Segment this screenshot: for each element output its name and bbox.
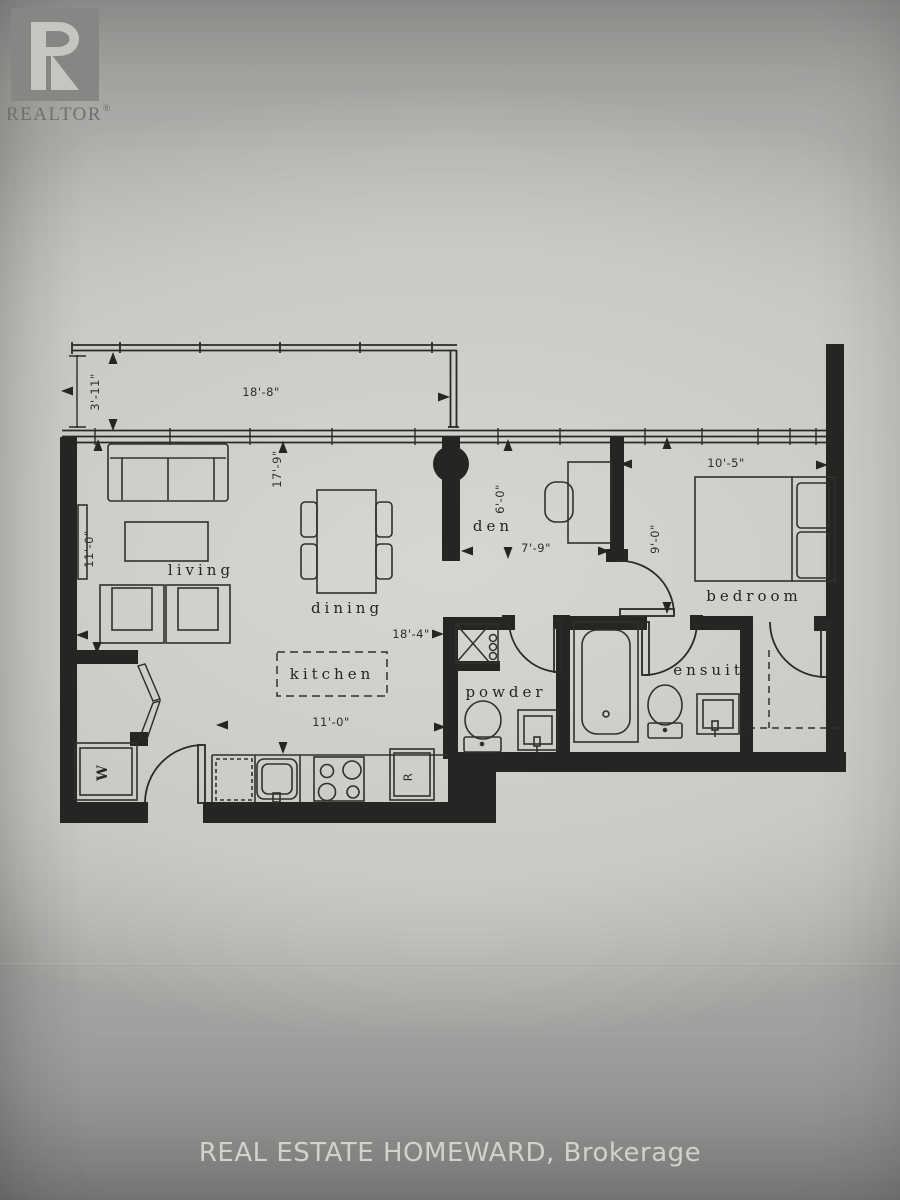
- room-label-powder: powder: [465, 683, 546, 701]
- powder-door: [509, 620, 561, 672]
- dining-chair: [376, 544, 392, 579]
- dim-den-depth: 6'-0": [493, 484, 507, 514]
- armchair-2: [166, 585, 230, 643]
- dim-bedroom-depth: 9'-0": [648, 524, 662, 554]
- bedroom-furniture: [695, 477, 835, 581]
- dishwasher: [216, 759, 252, 800]
- walk-in-closet-rod: [748, 650, 838, 728]
- sofa: [108, 444, 228, 501]
- dining-chair: [376, 502, 392, 537]
- living-room-furniture: [78, 444, 230, 643]
- room-label-dining: dining: [311, 599, 383, 617]
- ensuite-toilet: [648, 685, 682, 738]
- stove: [314, 757, 364, 801]
- dim-bedroom-width: 10'-5": [707, 456, 745, 470]
- room-label-kitchen: kitchen: [290, 665, 375, 683]
- dim-balcony-width: 18'-8": [242, 385, 280, 399]
- washer-label: W: [95, 765, 111, 782]
- dim-den-width: 7'-9": [521, 541, 551, 555]
- coffee-table: [125, 522, 208, 561]
- den-furniture: [545, 462, 611, 543]
- dining-chair: [301, 544, 317, 579]
- dining-furniture: [301, 490, 392, 593]
- fridge-label: R: [401, 773, 415, 782]
- kitchen-sink: [257, 759, 297, 802]
- room-label-bedroom: bedroom: [706, 587, 802, 605]
- dining-chair: [301, 502, 317, 537]
- desk: [568, 462, 611, 543]
- powder-sink: [518, 710, 558, 753]
- foyer: W: [75, 743, 137, 800]
- bed: [695, 477, 835, 581]
- ensuite-bathroom: [574, 622, 739, 742]
- room-label-ensuite: ensuite: [673, 661, 757, 679]
- ensuite-sink: [697, 694, 739, 737]
- photo-of-floor-plan-sheet: REALTOR ® 18'-8": [0, 0, 900, 1200]
- armchair-1: [100, 585, 164, 643]
- room-label-den: den: [473, 517, 513, 535]
- pillow: [797, 532, 829, 578]
- room-label-living: living: [168, 561, 234, 579]
- paper-crease: [0, 963, 900, 966]
- floor-plan-drawing: 18'-8" 3'-11": [0, 0, 900, 1200]
- dim-living-width: 11'-0": [82, 530, 96, 568]
- pillow: [797, 483, 829, 528]
- bathtub: [574, 622, 638, 742]
- entry-door: [145, 745, 205, 803]
- dim-balcony-depth: 3'-11": [88, 373, 102, 411]
- dim-living-dining-depth: 17'-9": [270, 450, 284, 488]
- dining-table: [317, 490, 376, 593]
- foyer-closet-bifold-doors: [138, 664, 160, 739]
- brokerage-footer-text: REAL ESTATE HOMEWARD, Brokerage: [0, 1138, 900, 1168]
- dim-kitchen-hall-run: 18'-4": [392, 627, 430, 641]
- powder-toilet: [464, 701, 501, 752]
- dim-kitchen-width: 11'-0": [312, 715, 350, 729]
